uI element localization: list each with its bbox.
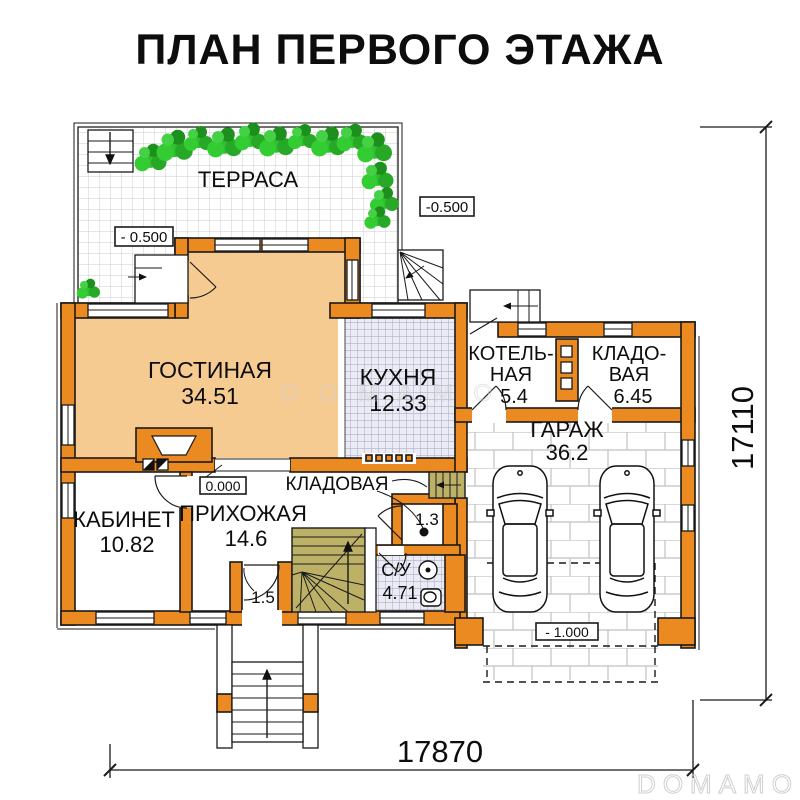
svg-text:- 1.000: - 1.000 <box>545 624 589 640</box>
elevation-entry: 0.000 <box>200 477 246 494</box>
winder-steps <box>398 250 443 300</box>
boiler-area: 5.4 <box>500 386 528 408</box>
watermark-center: D O M A M O <box>281 380 499 407</box>
bathroom-label: С/У <box>381 560 411 580</box>
boiler-porch <box>470 290 540 322</box>
main-staircase <box>292 528 365 612</box>
terrace-stairs <box>88 130 133 172</box>
storage-area: 1.3 <box>415 510 439 529</box>
bathroom-area: 4.71 <box>382 583 417 603</box>
vestibule-area: 1.5 <box>251 588 275 607</box>
boiler-label-1: КОТЕЛЬ- <box>468 343 553 365</box>
floor-plan-drawing: ТЕРРАСА <box>0 0 800 800</box>
svg-text:-0.500: -0.500 <box>426 199 469 216</box>
pantry-label-2: ВАЯ <box>609 364 649 386</box>
stair-partition <box>365 528 376 612</box>
terrace-entry-landing <box>128 255 188 303</box>
garage-area: 36.2 <box>546 440 589 465</box>
dimension-height-label: 17110 <box>725 386 760 470</box>
storage-label: КЛАДОВАЯ <box>286 474 389 495</box>
fireplace <box>136 428 212 462</box>
pantry-area: 6.45 <box>614 386 653 408</box>
svg-text:0.000: 0.000 <box>205 478 240 494</box>
living-label: ГОСТИНАЯ <box>148 357 272 383</box>
living-area: 34.51 <box>181 383 239 409</box>
elevation-garage: - 1.000 <box>536 623 598 640</box>
car-top-view <box>487 466 553 612</box>
dimension-width-label: 17870 <box>397 734 483 769</box>
dimension-right: 17110 <box>700 121 772 706</box>
office-area: 10.82 <box>99 532 154 557</box>
entry-stairs <box>217 625 318 748</box>
garage-apron <box>483 645 658 680</box>
garage-steps <box>429 472 465 498</box>
car-top-view <box>594 466 660 612</box>
watermark-corner: DOMAMO <box>637 769 799 799</box>
hallway-label: ПРИХОЖАЯ <box>179 501 307 526</box>
floor-plan-page: ПЛАН ПЕРВОГО ЭТАЖА <box>0 0 800 800</box>
chimney <box>556 339 578 401</box>
terrace-label: ТЕРРАСА <box>198 167 299 192</box>
garage-label: ГАРАЖ <box>530 417 604 442</box>
pantry-label-1: КЛАДО- <box>592 343 667 365</box>
svg-text:- 0.500: - 0.500 <box>121 229 168 246</box>
elevation-terrace-right: -0.500 <box>420 197 474 216</box>
office-label: КАБИНЕТ <box>73 507 175 532</box>
radiator <box>362 453 416 464</box>
hallway-area: 14.6 <box>225 526 268 551</box>
elevation-terrace-left: - 0.500 <box>115 227 173 246</box>
dimension-bottom: 17870 <box>104 700 699 778</box>
